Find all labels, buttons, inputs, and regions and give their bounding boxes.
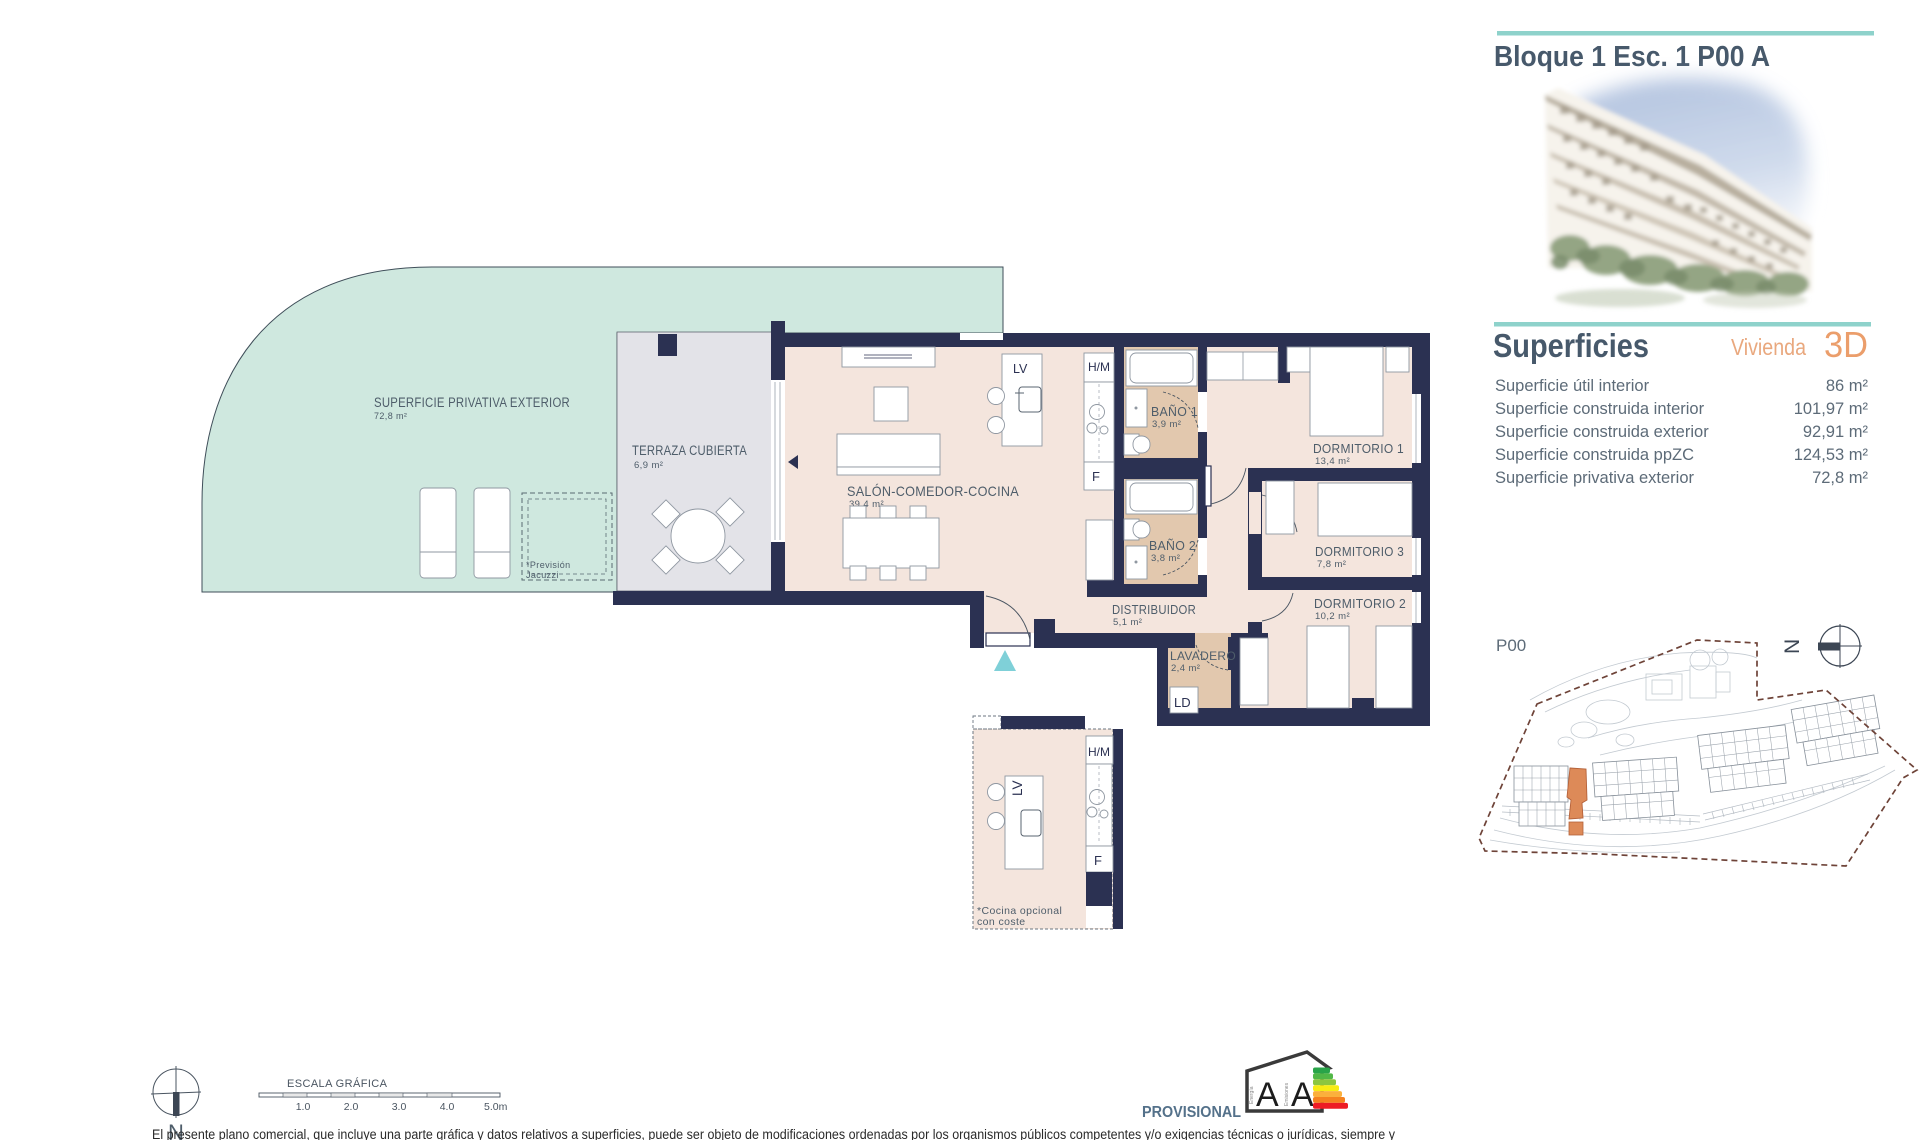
svg-text:Energía: Energía [1249,1086,1255,1104]
svg-text:LAVADERO: LAVADERO [1170,649,1236,663]
svg-text:86 m²: 86 m² [1826,377,1869,395]
svg-text:Vivienda: Vivienda [1731,334,1806,360]
svg-text:LD: LD [1174,695,1191,710]
svg-text:3,9 m²: 3,9 m² [1152,419,1181,430]
svg-text:92,91 m²: 92,91 m² [1803,423,1869,441]
svg-text:DISTRIBUIDOR: DISTRIBUIDOR [1112,602,1196,617]
svg-text:P00: P00 [1496,636,1526,655]
svg-text:BAÑO 1: BAÑO 1 [1151,405,1198,419]
svg-text:A: A [1291,1076,1314,1114]
svg-text:5,1 m²: 5,1 m² [1113,617,1142,628]
svg-text:El presente plano comercial, q: El presente plano comercial, que incluye… [152,1127,1395,1140]
svg-text:F: F [1094,853,1102,868]
svg-text:72,8 m²: 72,8 m² [1812,469,1868,487]
svg-text:DORMITORIO 1: DORMITORIO 1 [1313,441,1404,456]
svg-text:PROVISIONAL: PROVISIONAL [1142,1104,1241,1121]
svg-text:SALÓN-COMEDOR-COCINA: SALÓN-COMEDOR-COCINA [847,483,1019,499]
svg-text:SUPERFICIE PRIVATIVA EXTERIOR: SUPERFICIE PRIVATIVA EXTERIOR [374,395,570,410]
svg-text:3,8 m²: 3,8 m² [1151,553,1180,564]
svg-text:Superficies: Superficies [1493,327,1649,364]
svg-text:Superficie construida ppZC: Superficie construida ppZC [1495,446,1694,464]
svg-text:Bloque 1 Esc. 1 P00 A: Bloque 1 Esc. 1 P00 A [1494,41,1770,73]
svg-text:Superficie construida exterior: Superficie construida exterior [1495,423,1709,441]
svg-text:Superficie construida interior: Superficie construida interior [1495,400,1705,418]
svg-text:H/M: H/M [1088,360,1110,374]
svg-text:A: A [1256,1076,1279,1114]
svg-text:H/M: H/M [1088,745,1110,759]
svg-text:LV: LV [1013,362,1028,376]
svg-text:Emisiones: Emisiones [1284,1082,1290,1106]
svg-text:TERRAZA CUBIERTA: TERRAZA CUBIERTA [632,443,747,458]
svg-text:DORMITORIO 3: DORMITORIO 3 [1315,544,1404,559]
svg-text:4.0: 4.0 [440,1101,455,1113]
svg-text:72,8 m²: 72,8 m² [374,411,407,421]
svg-text:DORMITORIO 2: DORMITORIO 2 [1314,596,1406,611]
svg-text:ESCALA GRÁFICA: ESCALA GRÁFICA [287,1077,388,1090]
svg-text:3.0: 3.0 [392,1101,407,1113]
svg-text:5.0m: 5.0m [484,1101,508,1113]
svg-text:10,2 m²: 10,2 m² [1315,611,1350,622]
svg-text:7,8 m²: 7,8 m² [1317,559,1346,570]
svg-text:6,9 m²: 6,9 m² [634,460,663,471]
svg-text:2.0: 2.0 [344,1101,359,1113]
svg-text:Jacuzzi: Jacuzzi [526,570,559,580]
svg-text:*Previsión: *Previsión [526,560,571,570]
svg-text:BAÑO 2: BAÑO 2 [1149,539,1196,553]
svg-text:LV: LV [1010,780,1025,796]
svg-text:N: N [1781,639,1804,654]
svg-text:con coste: con coste [977,916,1026,928]
svg-text:1.0: 1.0 [296,1101,311,1113]
svg-text:124,53 m²: 124,53 m² [1794,446,1869,464]
svg-text:3D: 3D [1824,324,1868,365]
svg-text:F: F [1092,469,1100,484]
svg-text:13,4 m²: 13,4 m² [1315,456,1350,467]
svg-text:2,4 m²: 2,4 m² [1171,663,1200,674]
svg-text:Superficie privativa exterior: Superficie privativa exterior [1495,469,1695,487]
svg-text:Superficie útil interior: Superficie útil interior [1495,377,1650,395]
svg-text:101,97 m²: 101,97 m² [1794,400,1869,418]
